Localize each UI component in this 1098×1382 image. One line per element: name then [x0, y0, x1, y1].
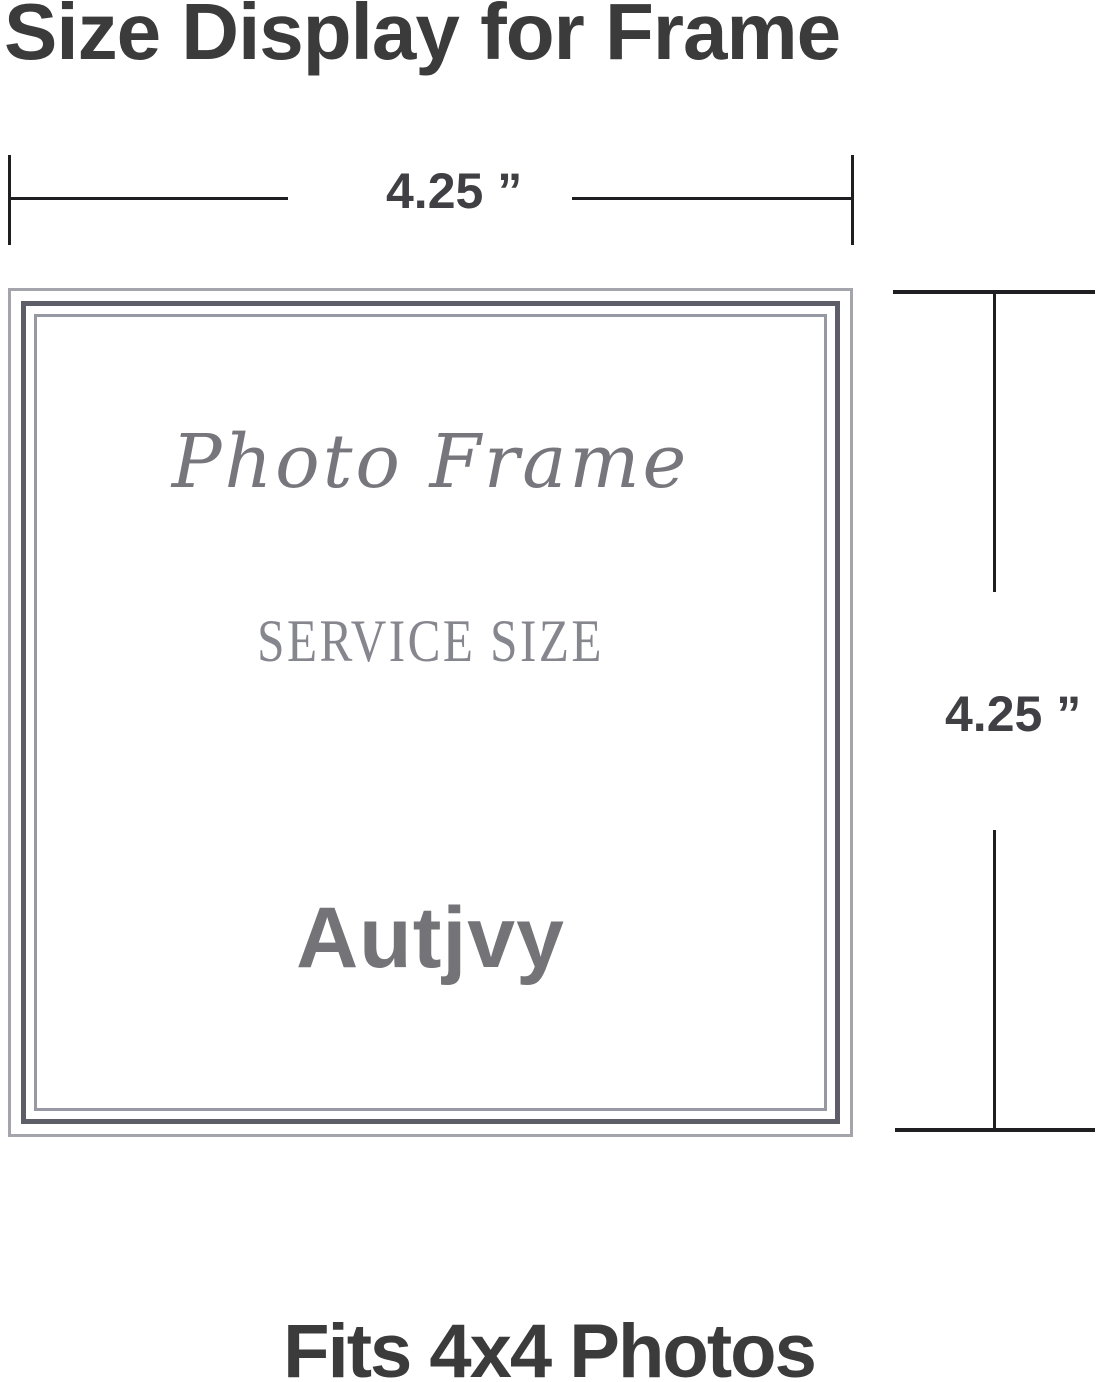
height-dimension-line-top [993, 292, 996, 592]
page-title: Size Display for Frame [4, 0, 840, 74]
photo-frame-middle-border: Photo Frame SERVICE SIZE Autjvy [21, 301, 840, 1124]
height-dimension-label: 4.25 ” [945, 685, 1081, 743]
width-dimension-line-right [572, 197, 854, 200]
frame-subtitle: SERVICE SIZE [108, 607, 753, 676]
width-dimension-line-left [8, 197, 288, 200]
width-dimension-right-tick [851, 155, 854, 245]
height-dimension-line-bottom [993, 830, 996, 1131]
photo-frame-inner-border: Photo Frame SERVICE SIZE Autjvy [34, 314, 827, 1111]
width-dimension-left-tick [8, 155, 11, 245]
width-dimension-label: 4.25 ” [386, 162, 522, 220]
frame-script-title: Photo Frame [37, 419, 824, 505]
height-dimension-bottom-tick [895, 1128, 1095, 1132]
footer-caption: Fits 4x4 Photos [0, 1308, 1098, 1382]
photo-frame: Photo Frame SERVICE SIZE Autjvy [8, 288, 853, 1137]
frame-brand-label: Autjvy [37, 889, 824, 988]
